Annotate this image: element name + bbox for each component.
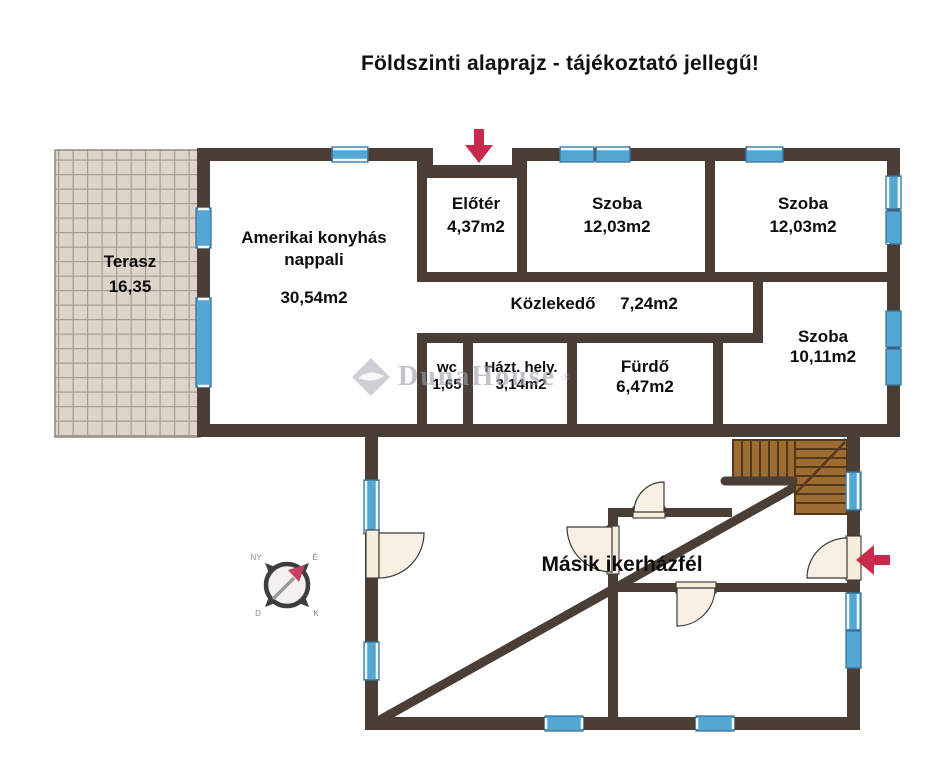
compass-north-label: É <box>312 553 317 562</box>
room-label-nappali: Amerikai konyhás nappali <box>227 227 402 271</box>
room-area-wc: 1,65 <box>432 375 461 395</box>
room-label-terasz: Terasz <box>104 251 157 273</box>
room-label-kozlekedo: Közlekedő <box>510 293 595 315</box>
room-area-hazt-hely: 3,14m2 <box>496 375 547 395</box>
room-area-szoba-2: 12,03m2 <box>769 216 836 238</box>
compass-south-label: D <box>255 609 261 618</box>
room-area-nappali: 30,54m2 <box>280 287 347 309</box>
compass-west-label: NY <box>250 553 262 562</box>
floorplan-canvas: Földszinti alaprajz - tájékoztató jelleg… <box>0 0 940 768</box>
entrance-arrow-down-icon <box>465 129 493 163</box>
room-label-szoba-3: Szoba <box>798 326 848 348</box>
room-label-szoba-1: Szoba <box>592 193 642 215</box>
room-label-eloter: Előtér <box>452 193 500 215</box>
compass-icon: É K D NY <box>250 553 319 618</box>
room-area-szoba-3: 10,11m2 <box>790 346 856 368</box>
room-area-kozlekedo: 7,24m2 <box>620 293 678 315</box>
room-area-furdo: 6,47m2 <box>616 376 674 398</box>
floorplan-svg: É K D NY <box>0 0 940 768</box>
room-area-eloter: 4,37m2 <box>447 216 505 238</box>
compass-east-label: K <box>313 609 319 618</box>
room-area-szoba-1: 12,03m2 <box>583 216 650 238</box>
other-half-label: Másik ikerházfél <box>541 551 702 578</box>
stairs <box>725 440 847 514</box>
room-label-szoba-2: Szoba <box>778 193 828 215</box>
room-area-terasz: 16,35 <box>109 276 152 298</box>
room-label-furdo: Fürdő <box>621 356 669 378</box>
